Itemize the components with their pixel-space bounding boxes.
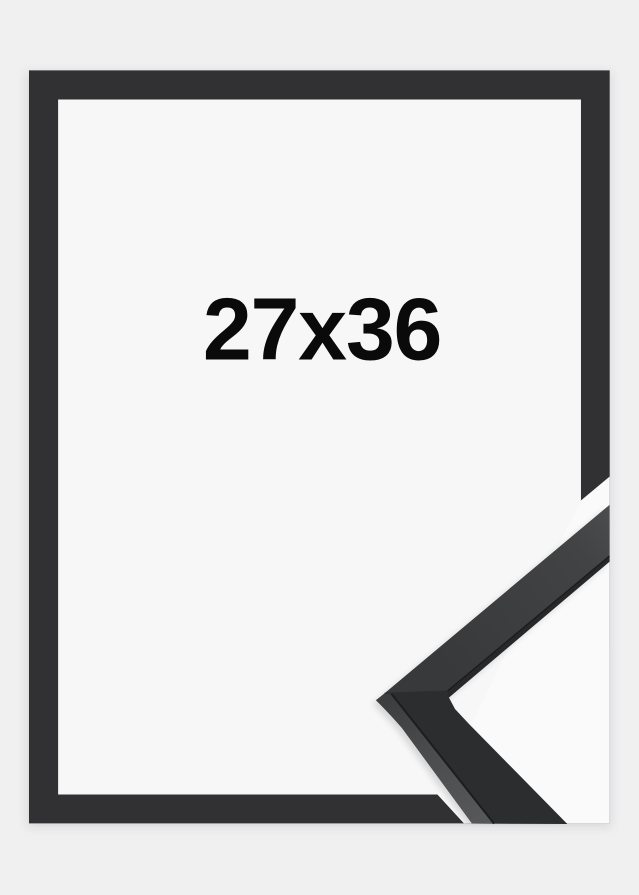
svg-text:27x36: 27x36 [203,279,441,378]
